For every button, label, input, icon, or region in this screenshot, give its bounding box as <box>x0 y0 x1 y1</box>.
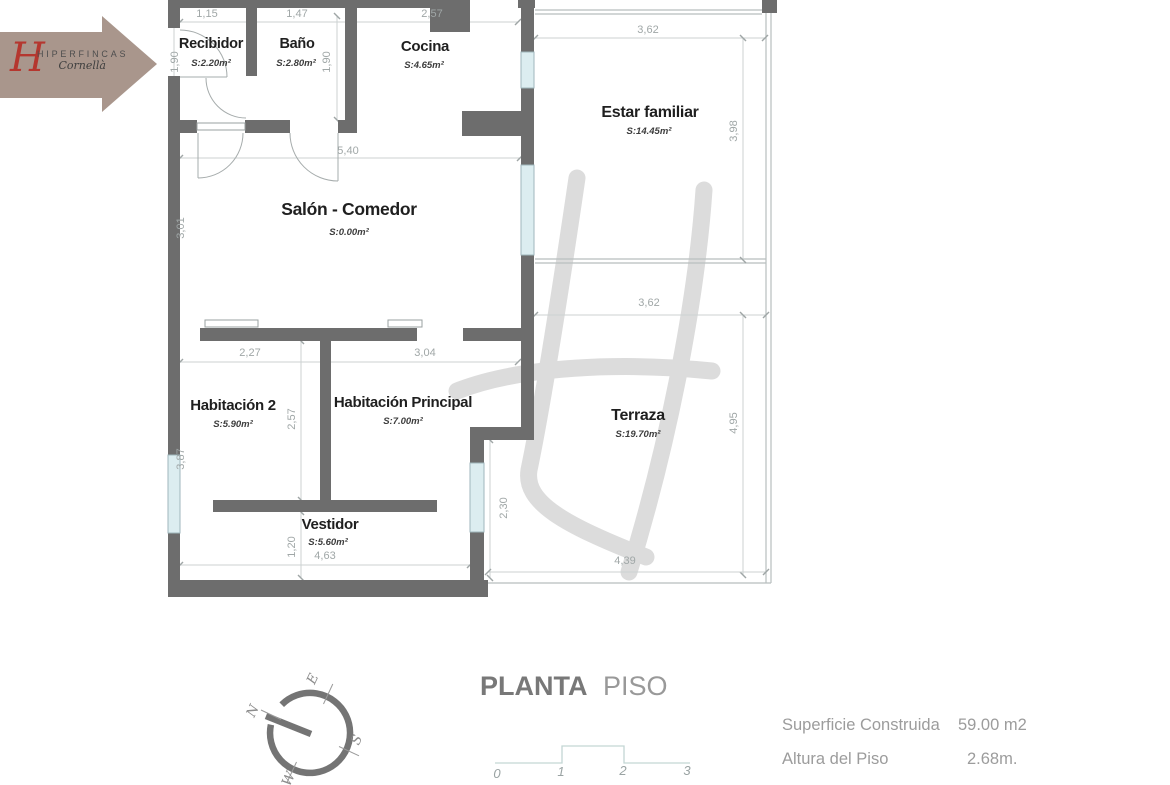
scale-tick-1: 1 <box>557 764 564 779</box>
dim-hab2-height: 2,57 <box>286 408 298 429</box>
compass-rose: N E S W <box>243 671 366 785</box>
dim-salon-width: 5,40 <box>337 145 358 157</box>
dim-terraza-height: 4,95 <box>728 412 740 433</box>
floor-plan-canvas: Recibidor S:2.20m² Baño S:2.80m² Cocina … <box>0 0 1170 785</box>
room-area-habitacion-principal: S:7.00m² <box>383 416 423 427</box>
logo-tagline: Cornellà <box>59 59 107 72</box>
room-area-salon-comedor: S:0.00m² <box>329 227 369 238</box>
room-area-habitacion-2: S:5.90m² <box>213 419 253 430</box>
dim-hab2-width: 2,27 <box>239 347 260 359</box>
dim-estar-width: 3,62 <box>637 24 658 36</box>
dim-terraza-left-height: 2,30 <box>498 497 510 518</box>
door-swing <box>290 133 338 181</box>
dim-vestidor-width: 4,63 <box>314 550 335 562</box>
scale-tick-2: 2 <box>618 763 627 778</box>
dim-left-lower-height: 3,87 <box>175 448 187 469</box>
window <box>470 463 484 532</box>
door-swing <box>206 78 246 118</box>
scale-bar-line <box>495 746 690 763</box>
dim-entry-height: 1,90 <box>169 51 181 72</box>
room-label-salon-comedor: Salón - Comedor <box>281 199 417 219</box>
room-label-terraza: Terraza <box>611 407 665 424</box>
sliding-doors <box>197 123 422 327</box>
room-label-habitacion-2: Habitación 2 <box>190 397 276 414</box>
room-area-bano: S:2.80m² <box>276 58 316 69</box>
logo-brand-name: HIPERFINCAS <box>37 49 128 59</box>
altura-value: 2.68m. <box>967 750 1017 768</box>
window <box>521 165 534 255</box>
dim-estar-height: 3,98 <box>728 120 740 141</box>
scale-tick-0: 0 <box>493 766 501 781</box>
watermark-h-icon <box>457 178 712 572</box>
room-area-vestidor: S:5.60m² <box>308 537 348 548</box>
construction-details: Superficie Construida 59.00 m2 Altura de… <box>782 716 1027 768</box>
room-label-vestidor: Vestidor <box>302 516 359 533</box>
room-labels: Recibidor S:2.20m² Baño S:2.80m² Cocina … <box>179 36 699 548</box>
dim-salon-height: 3,01 <box>175 217 187 238</box>
sliding-door <box>205 320 258 327</box>
compass-label-n: N <box>243 701 263 720</box>
room-label-recibidor: Recibidor <box>179 36 244 52</box>
floor-plan-page: Recibidor S:2.20m² Baño S:2.80m² Cocina … <box>0 0 1170 785</box>
dim-terraza-bottom-width: 4,39 <box>614 555 635 567</box>
dim-recibidor-width: 1,15 <box>196 8 217 20</box>
dim-terraza-width: 3,62 <box>638 297 659 309</box>
sliding-door <box>197 123 245 130</box>
room-label-estar-familiar: Estar familiar <box>601 104 698 121</box>
room-area-estar-familiar: S:14.45m² <box>627 126 673 137</box>
dim-bano-width: 1,47 <box>286 8 307 20</box>
room-area-terraza: S:19.70m² <box>616 429 662 440</box>
superficie-label: Superficie Construida <box>782 716 941 734</box>
room-label-bano: Baño <box>279 36 314 52</box>
brand-logo: H HIPERFINCAS Cornellà <box>0 16 157 112</box>
room-area-recibidor: S:2.20m² <box>191 58 231 69</box>
dim-cocina-width: 2,57 <box>421 8 442 20</box>
dim-habp-width: 3,04 <box>414 347 435 359</box>
room-label-habitacion-principal: Habitación Principal <box>334 394 472 411</box>
scale-bar: 0 1 2 3 <box>493 746 691 781</box>
superficie-value: 59.00 m2 <box>958 716 1027 734</box>
scale-tick-3: 3 <box>683 763 691 778</box>
room-area-cocina: S:4.65m² <box>404 60 444 71</box>
altura-label: Altura del Piso <box>782 750 888 768</box>
sliding-door <box>388 320 422 327</box>
room-label-cocina: Cocina <box>401 38 450 55</box>
window <box>521 52 534 88</box>
compass-label-e: E <box>303 671 322 688</box>
plan-title-secondary: PISO <box>603 671 668 701</box>
dim-vestidor-height: 1,20 <box>286 536 298 557</box>
dim-bano-height: 1,90 <box>321 51 333 72</box>
door-swing <box>198 133 243 178</box>
plan-title-primary: PLANTA <box>480 671 588 701</box>
plan-title: PLANTA PISO <box>480 671 668 701</box>
